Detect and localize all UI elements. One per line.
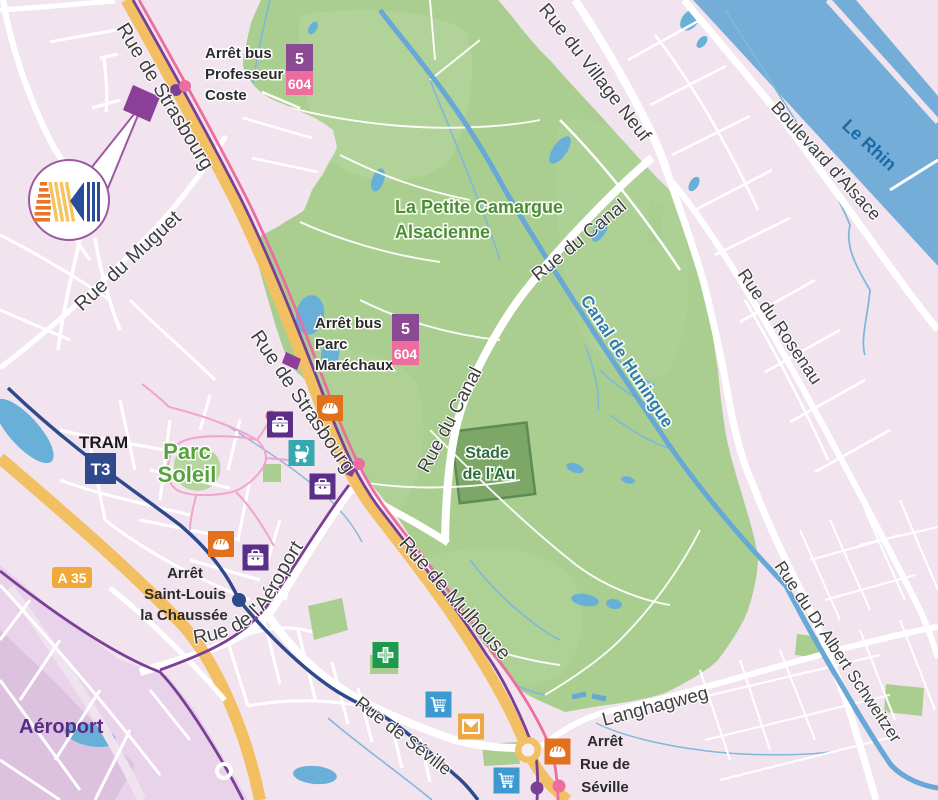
- svg-text:TRAM: TRAM: [79, 433, 128, 452]
- svg-text:604: 604: [394, 346, 418, 362]
- svg-text:Rue de: Rue de: [580, 756, 630, 773]
- svg-text:Maréchaux: Maréchaux: [315, 357, 394, 374]
- svg-text:Parc: Parc: [163, 439, 211, 464]
- svg-text:de l'Au: de l'Au: [463, 466, 516, 483]
- svg-text:Alsacienne: Alsacienne: [395, 222, 490, 242]
- svg-text:5: 5: [295, 51, 304, 68]
- svg-text:Soleil: Soleil: [158, 462, 217, 487]
- svg-text:la Chaussée: la Chaussée: [140, 607, 228, 624]
- svg-text:Professeur: Professeur: [205, 66, 284, 83]
- svg-text:5: 5: [401, 321, 410, 338]
- svg-text:Arrêt: Arrêt: [587, 733, 623, 750]
- svg-text:Aéroport: Aéroport: [19, 716, 104, 738]
- svg-text:Parc: Parc: [315, 336, 348, 353]
- svg-text:La Petite Camargue: La Petite Camargue: [395, 197, 563, 217]
- svg-text:604: 604: [288, 76, 312, 92]
- svg-text:Stade: Stade: [465, 445, 509, 462]
- svg-text:Coste: Coste: [205, 87, 247, 104]
- svg-text:Arrêt bus: Arrêt bus: [205, 45, 272, 62]
- svg-text:Saint-Louis: Saint-Louis: [144, 586, 226, 603]
- svg-text:A 35: A 35: [57, 570, 86, 586]
- svg-text:Arrêt bus: Arrêt bus: [315, 315, 382, 332]
- svg-text:Séville: Séville: [581, 779, 629, 796]
- svg-text:Arrêt: Arrêt: [167, 565, 203, 582]
- svg-text:T3: T3: [91, 460, 111, 479]
